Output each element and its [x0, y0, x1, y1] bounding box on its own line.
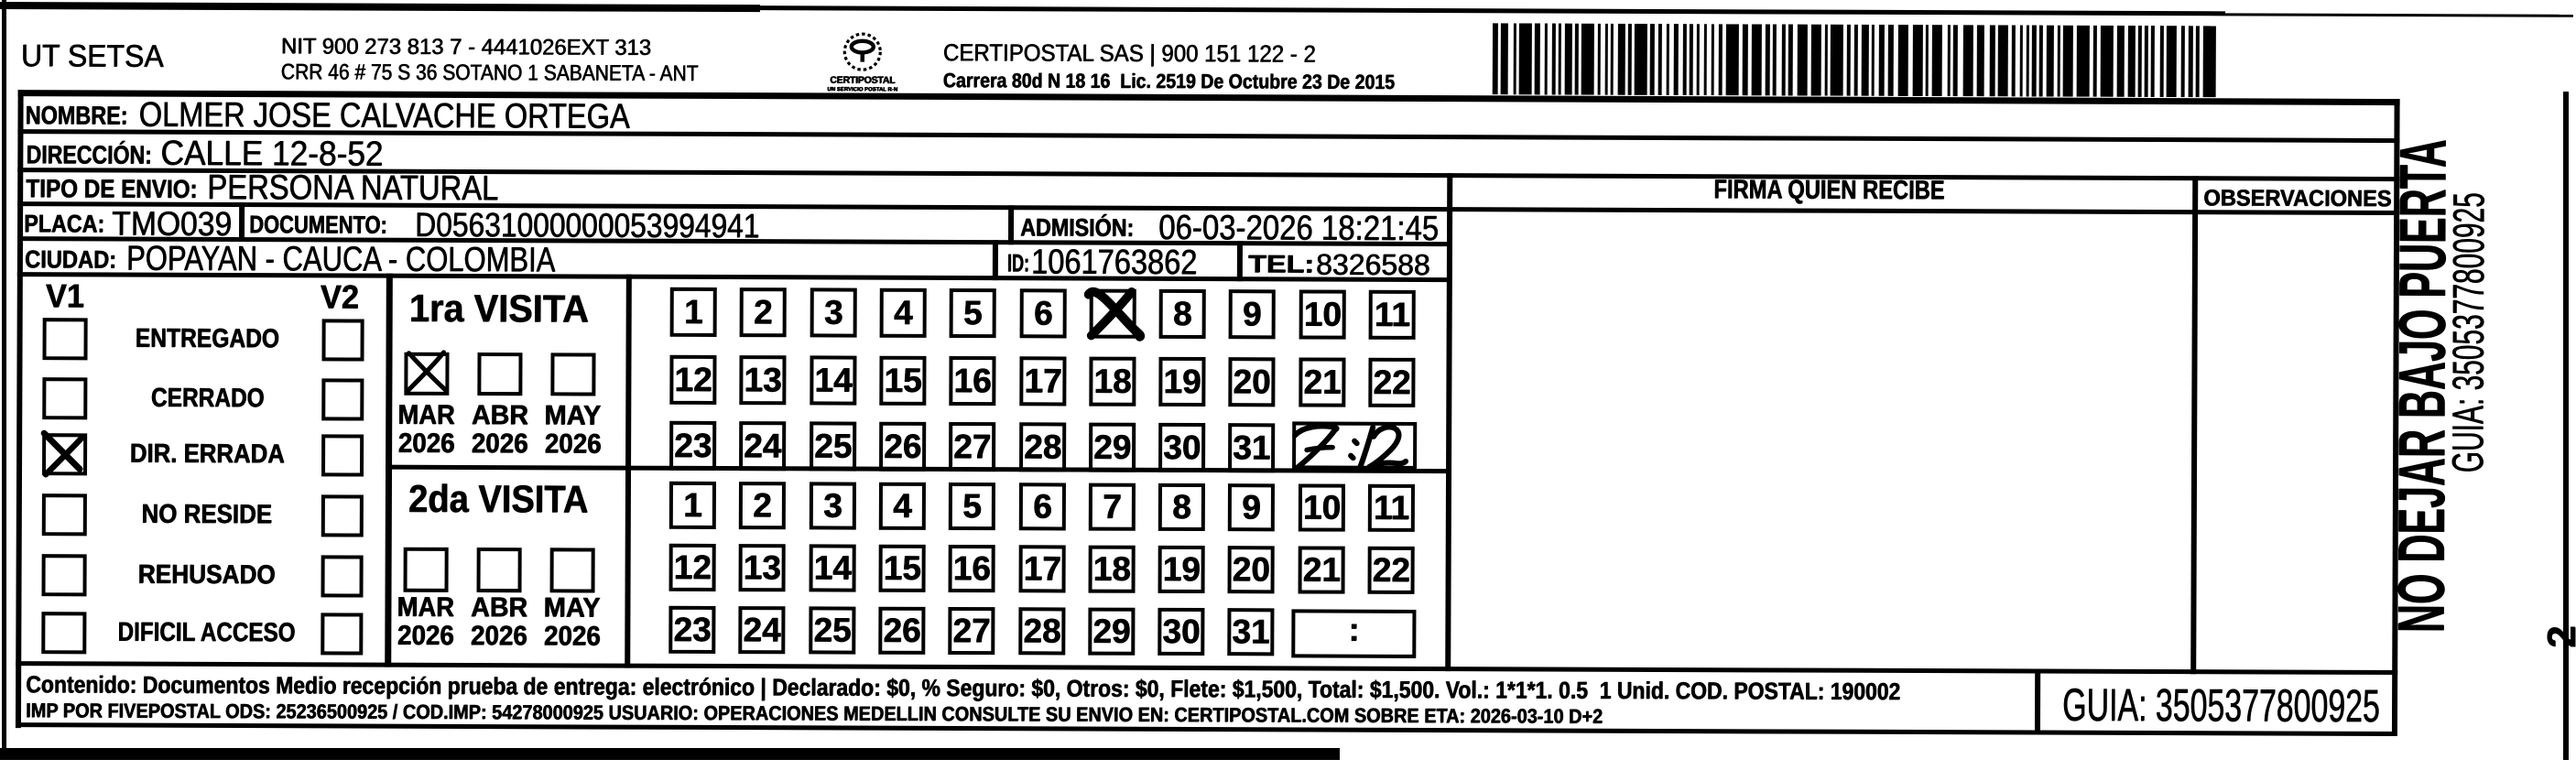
svg-text:UN SERVICIO POSTAL R-N: UN SERVICIO POSTAL R-N [827, 87, 897, 92]
svg-text:CERTIPOSTAL: CERTIPOSTAL [830, 74, 896, 85]
